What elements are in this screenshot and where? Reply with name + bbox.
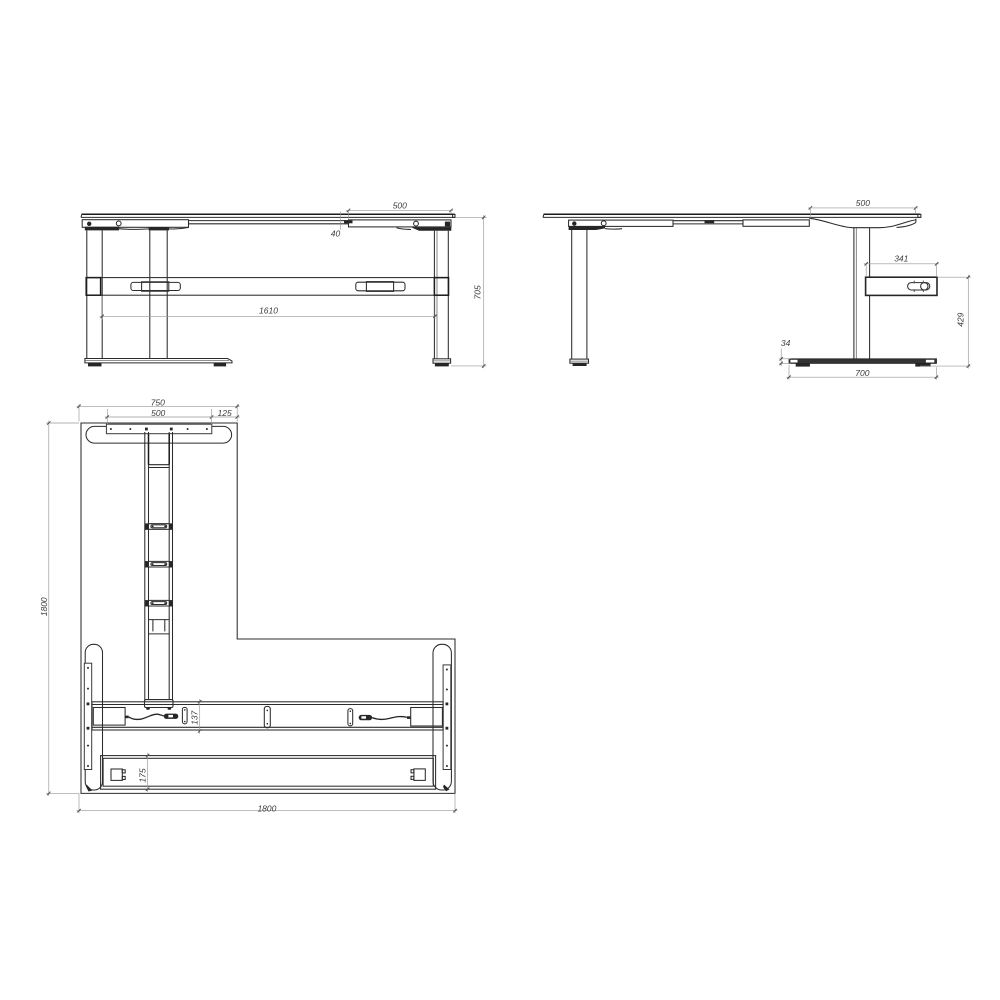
svg-text:175: 175: [137, 768, 147, 782]
svg-text:137: 137: [190, 710, 200, 724]
svg-text:705: 705: [473, 285, 483, 299]
svg-text:40: 40: [331, 229, 341, 239]
svg-text:429: 429: [956, 312, 966, 326]
svg-text:500: 500: [151, 408, 165, 418]
svg-text:500: 500: [393, 200, 407, 210]
svg-text:750: 750: [151, 397, 165, 407]
svg-text:34: 34: [781, 338, 791, 348]
svg-text:341: 341: [894, 253, 908, 263]
svg-text:1610: 1610: [259, 306, 278, 316]
svg-text:500: 500: [856, 198, 870, 208]
svg-text:700: 700: [855, 368, 869, 378]
svg-text:1800: 1800: [39, 597, 49, 616]
svg-text:1800: 1800: [257, 803, 276, 813]
svg-text:125: 125: [218, 408, 232, 418]
